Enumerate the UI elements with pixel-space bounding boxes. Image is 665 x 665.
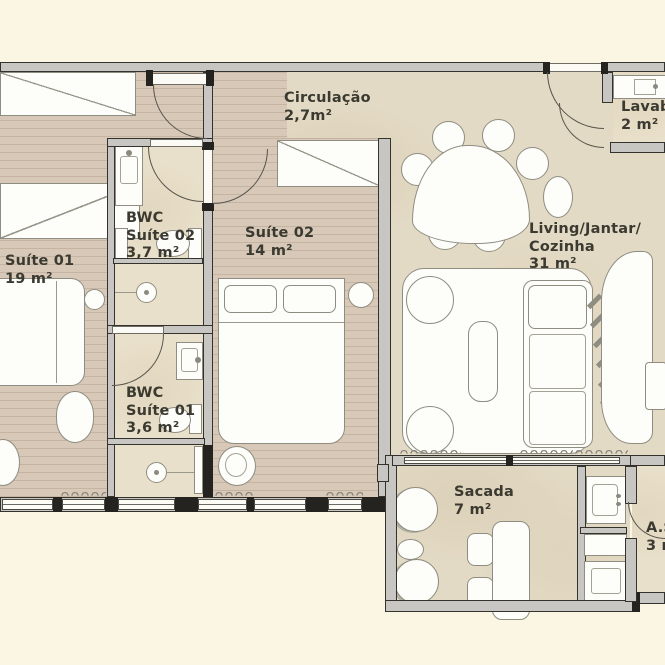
armchair-suite01 — [56, 391, 94, 443]
window-post-5 — [306, 497, 328, 512]
coffee-table — [468, 321, 498, 402]
label-sacada-name: Sacada — [454, 484, 514, 502]
kitchen-island — [601, 251, 653, 444]
label-bwc-suite01-area: 3,6 m² — [126, 420, 195, 438]
wall-top-left — [0, 62, 549, 72]
door-bwc-suite01 — [112, 326, 164, 334]
pillow-suite02-right — [283, 285, 336, 313]
window-suite02-c — [328, 499, 362, 510]
laundry-faucet-2 — [616, 502, 621, 506]
curtain-suite01 — [60, 487, 106, 496]
label-suite02: Suíte 02 14 m² — [245, 225, 314, 260]
wall-servico-bottom — [638, 592, 665, 604]
wall-suite02-right — [378, 138, 391, 497]
shower-glass-bwc-suite01 — [194, 446, 203, 494]
sacada-dining-chair-1 — [467, 533, 494, 566]
pillow-suite02-left — [224, 285, 277, 313]
label-living: Living/Jantar/ Cozinha 31 m² — [529, 221, 641, 274]
dining-chair-4 — [516, 147, 549, 180]
washer-drum — [591, 568, 621, 594]
door-suite01 — [152, 73, 208, 85]
label-suite02-name: Suíte 02 — [245, 225, 314, 243]
sacada-lounge-chair-1 — [393, 487, 438, 532]
label-lavabo-name: Lavabo — [621, 99, 665, 117]
sink-bwc-suite02 — [120, 156, 138, 184]
wall-servico-left-lower — [625, 538, 637, 602]
label-area-servico-name: A.S. — [646, 520, 665, 538]
window-post-2 — [105, 497, 118, 512]
bed-suite01-sheet-line — [56, 281, 57, 383]
label-sacada: Sacada 7 m² — [454, 484, 514, 519]
sofa-cushion-1 — [529, 334, 586, 389]
window-post-1 — [53, 497, 62, 512]
curtain-living-a — [399, 445, 461, 454]
door-suite02-post-bottom — [202, 203, 214, 211]
sofa-chaise — [528, 285, 587, 329]
label-bwc-suite02-area: 3,7 m² — [126, 245, 195, 263]
bed-suite02-sheet-line — [219, 322, 344, 323]
label-living-l1: Living/Jantar/ — [529, 221, 641, 239]
shower-drain-dot-bwc-suite01 — [154, 470, 159, 475]
living-armchair-top — [406, 276, 454, 324]
dining-chair-5 — [543, 176, 573, 218]
label-sacada-area: 7 m² — [454, 502, 514, 520]
floor-circulacao — [213, 72, 287, 138]
door-suite01-post-left — [146, 70, 153, 86]
window-suite02-a — [198, 499, 247, 510]
wall-sacada-bottom — [385, 600, 638, 612]
wardrobe-suite01-top — [0, 72, 136, 116]
bed-suite01 — [0, 278, 85, 386]
window-post-3 — [175, 497, 198, 512]
curtain-living-b — [519, 445, 573, 454]
wall-top-right — [602, 62, 665, 72]
shower-line-bwc-suite01 — [167, 472, 195, 473]
label-bwc-suite01: BWC Suíte 01 3,6 m² — [126, 385, 195, 438]
label-area-servico-area: 3 m² — [646, 538, 665, 556]
door-suite02 — [203, 149, 213, 204]
wall-post-bwc-suite01 — [203, 445, 213, 497]
door-suite01-post-right — [206, 70, 214, 86]
sacada-side-table — [397, 539, 424, 560]
sofa-cushion-2 — [529, 391, 586, 445]
label-bwc-suite01-l2: Suíte 01 — [126, 403, 195, 421]
sacada-lounge-chair-2 — [394, 559, 439, 604]
nightstand-suite01 — [84, 289, 105, 310]
label-lavabo-area: 2 m² — [621, 117, 665, 135]
floor-plan-canvas: { "rooms": { "suite01": { "lines": ["Suí… — [0, 0, 665, 665]
armchair-suite02-cushion — [225, 453, 247, 477]
label-circulacao-area: 2,7m² — [284, 108, 371, 126]
wall-servico-left-upper — [625, 466, 637, 504]
window-post-6 — [362, 497, 385, 512]
label-bwc-suite02-l1: BWC — [126, 210, 195, 228]
label-bwc-suite02-l2: Suíte 02 — [126, 228, 195, 246]
faucet-bwc-suite01 — [195, 357, 201, 363]
wall-bwc-suite01-shower-divider — [107, 438, 205, 445]
sliding-door-post-center — [506, 455, 513, 466]
laundry-sink-basin — [592, 484, 618, 516]
laundry-divider-1 — [580, 527, 627, 534]
wall-sacada-left-notch — [377, 464, 389, 482]
faucet-bwc-suite02 — [126, 150, 132, 156]
label-circulacao: Circulação 2,7m² — [284, 90, 371, 125]
wardrobe-suite02 — [277, 140, 381, 187]
faucet-lavabo — [653, 84, 658, 89]
label-bwc-suite01-l1: BWC — [126, 385, 195, 403]
shower-drain-dot-bwc-suite02 — [144, 290, 149, 295]
label-circulacao-name: Circulação — [284, 90, 371, 108]
label-suite01-area: 19 m² — [5, 271, 74, 289]
label-lavabo: Lavabo 2 m² — [621, 99, 665, 134]
window-suite01-b — [62, 499, 105, 510]
wall-lavabo-bottom — [610, 142, 665, 153]
curtain-living-c — [574, 445, 628, 454]
nightstand-suite02 — [348, 282, 374, 308]
kitchen-edge-appliance — [645, 362, 665, 410]
curtain-suite02-b — [325, 487, 363, 496]
wall-servico-top — [630, 455, 665, 466]
label-suite02-area: 14 m² — [245, 243, 314, 261]
label-bwc-suite02: BWC Suíte 02 3,7 m² — [126, 210, 195, 263]
window-suite01-a — [2, 499, 53, 510]
window-post-4 — [247, 497, 254, 512]
label-living-area: 31 m² — [529, 256, 641, 274]
label-area-servico: A.S. 3 m² — [646, 520, 665, 555]
curtain-suite02-a — [214, 487, 254, 496]
laundry-cabinet — [584, 534, 627, 556]
label-suite01-name: Suíte 01 — [5, 253, 74, 271]
door-entrance — [549, 63, 603, 72]
window-suite02-b — [254, 499, 306, 510]
label-living-l2: Cozinha — [529, 239, 641, 257]
label-suite01: Suíte 01 19 m² — [5, 253, 74, 288]
window-bwc-column — [118, 499, 175, 510]
door-bwc-suite02 — [150, 139, 203, 147]
laundry-faucet-1 — [616, 494, 621, 498]
